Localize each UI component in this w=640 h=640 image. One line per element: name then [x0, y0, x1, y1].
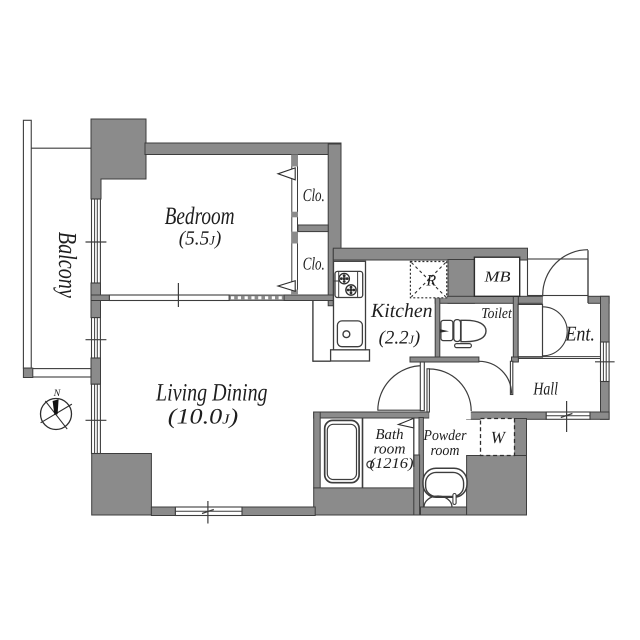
svg-text:Bedroom: Bedroom [165, 203, 235, 230]
svg-text:(1216): (1216) [370, 456, 414, 472]
svg-text:(5.5J): (5.5J) [179, 228, 222, 250]
svg-text:R: R [425, 272, 436, 289]
svg-text:room: room [431, 443, 460, 459]
svg-text:Powder: Powder [423, 428, 467, 444]
svg-text:W: W [491, 428, 507, 447]
svg-text:Kitchen: Kitchen [370, 300, 432, 322]
svg-text:Clo.: Clo. [303, 185, 325, 205]
svg-text:Balcony: Balcony [53, 232, 82, 298]
svg-text:Clo.: Clo. [303, 254, 325, 274]
svg-text:Ent.: Ent. [565, 322, 595, 346]
svg-text:Hall: Hall [533, 379, 558, 399]
svg-text:Toilet: Toilet [481, 306, 512, 322]
svg-text:Living Dining: Living Dining [155, 379, 267, 406]
svg-text:(2.2J): (2.2J) [379, 328, 421, 349]
svg-text:N: N [53, 388, 62, 399]
svg-text:MB: MB [483, 270, 510, 286]
